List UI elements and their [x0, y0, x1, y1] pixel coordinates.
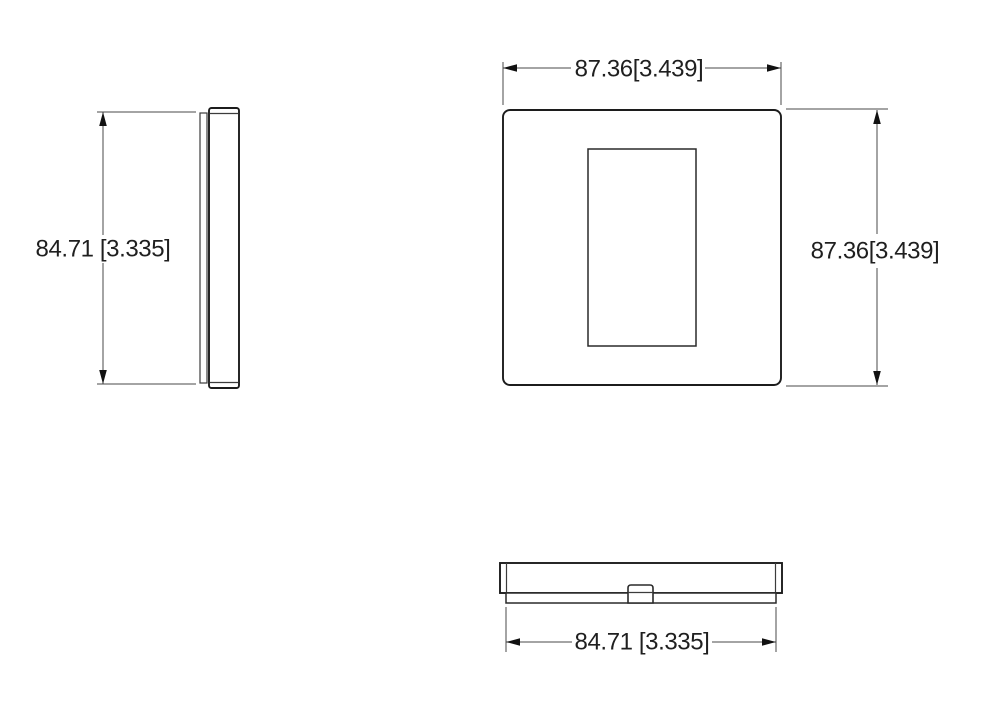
side-view	[200, 108, 239, 388]
technical-drawing: 84.71 [3.335] 87.36[3.439] 87.36[3.439]	[0, 0, 1001, 726]
front-height-dimension: 87.36[3.439]	[786, 109, 939, 386]
arrowhead-left-icon	[503, 64, 517, 72]
arrowhead-down-icon	[873, 371, 881, 385]
arrowhead-up-icon	[873, 110, 881, 124]
front-view-device-opening	[588, 149, 696, 346]
drawing-canvas: 84.71 [3.335] 87.36[3.439] 87.36[3.439]	[0, 0, 1001, 726]
arrowhead-right-icon	[762, 638, 776, 646]
side-view-faceplate-profile	[209, 108, 239, 388]
arrowhead-left-icon	[506, 638, 520, 646]
bottom-view	[500, 563, 782, 603]
front-width-dimension-text: 87.36[3.439]	[575, 56, 704, 83]
arrowhead-down-icon	[99, 370, 107, 384]
front-height-dimension-text: 87.36[3.439]	[811, 238, 940, 265]
front-view	[503, 110, 781, 385]
bottom-width-dimension: 84.71 [3.335]	[506, 607, 776, 656]
bottom-view-snap-tab	[628, 585, 653, 603]
arrowhead-up-icon	[99, 112, 107, 126]
arrowhead-right-icon	[767, 64, 781, 72]
side-height-dimension: 84.71 [3.335]	[36, 112, 196, 384]
front-width-dimension: 87.36[3.439]	[503, 56, 781, 106]
bottom-width-dimension-text: 84.71 [3.335]	[575, 629, 710, 656]
side-view-back-housing-edge	[200, 113, 207, 383]
side-height-dimension-text: 84.71 [3.335]	[36, 236, 171, 263]
